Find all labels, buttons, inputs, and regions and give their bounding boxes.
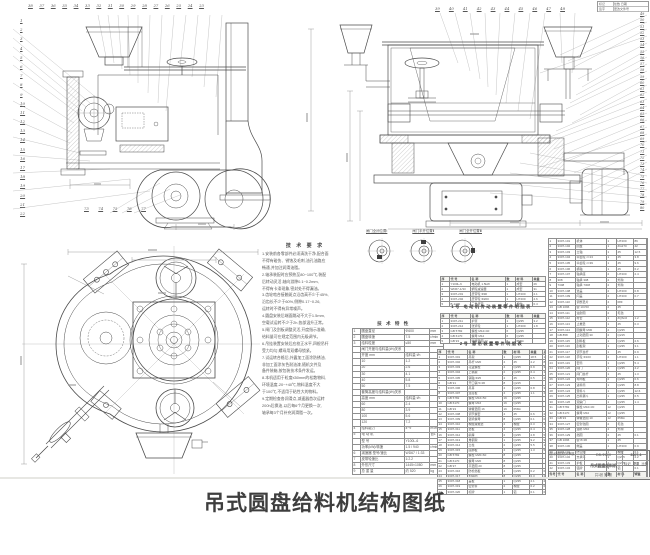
title-block-mark: 标记 — [623, 461, 632, 469]
note-line: 5.闸门及刮板调整灵活,开度指示准确, — [262, 327, 348, 334]
drawing-number: 3307-1 — [623, 451, 649, 461]
note-line: 环境温度-20~+40℃,物料温度不大 — [262, 382, 348, 389]
note-line: 6.吊挂装置安装后应校正水平,四根吊杆 — [262, 341, 348, 348]
note-line: 给料量可在规定范围内无级调节。 — [262, 334, 348, 341]
bom-table-suspension: 序代 号名 称数材 料单重总重13307-301吊架1Q23518.518.52… — [437, 349, 546, 495]
detail-view-label: 闸门半开位置Ⅱ — [412, 228, 434, 233]
table-cell: 9 — [353, 469, 361, 475]
detail-view-c-drawing — [448, 237, 478, 265]
engineering-drawing-page: 标记处数 日期 签字更改文件号 123456789101112131415161… — [0, 0, 650, 555]
right-section-view-drawing — [330, 3, 648, 233]
drawing-scale: 1:5 — [623, 469, 649, 477]
detail-view-labels: 闸门全闭位置Ⅰ闸门半开位置Ⅱ闸门全开位置Ⅲ — [366, 228, 482, 233]
bom-table-motor-drive: 序代 号名 称数材 料单重备注1Y100L-6电动机 1.5kW1成套26外购2… — [440, 276, 546, 307]
handwheel-bottom — [156, 389, 194, 427]
note-line: 于100℃,不适用于粘性大的物料。 — [262, 389, 348, 396]
sheet-edge-divider — [0, 477, 650, 479]
left-elevation-view-drawing — [10, 3, 320, 231]
title-block-marks: 标记重量比例 — [623, 461, 649, 469]
title-block-mark: 重量 — [632, 461, 641, 469]
spec-table: 1圆盘直径Φ600mm2圆盘转速7.5r/min3给料粒度≤50mm闸门开度与给… — [352, 328, 444, 475]
product-name: 吊式圆盘给料机 — [585, 461, 622, 471]
note-line: 3.齿轮啮合接触斑点沿齿高不少于45%, — [262, 292, 348, 299]
detail-view-label: 闸门全闭位置Ⅰ — [366, 228, 387, 233]
note-line: 7.试运转合格后,外露加工面涂防锈油, — [262, 355, 348, 362]
detail-view-b-drawing — [407, 237, 437, 265]
note-line: 8.本机适用于粒度≤50mm的松散物料, — [262, 375, 348, 382]
note-line: 200h后换油,以后每6个月更换一次, — [262, 403, 348, 410]
note-line: 备件装箱,按包装技术条件发运。 — [262, 368, 348, 375]
plan-view-drawing — [8, 236, 266, 476]
title-block-roles: 设计制图校对审核 — [549, 451, 585, 479]
page-title: 吊式圆盘给料机结构图纸 — [0, 487, 650, 517]
model-number: DB-Φ600 — [585, 451, 622, 461]
note-line: 2.轴承装配时应预热至80~100℃,装配 — [262, 272, 348, 279]
bom-heading-2: 2号 悬吊装置零件明细表 — [437, 341, 546, 347]
note-line: 不得有卡滞现象,密封处不得漏油。 — [262, 286, 348, 293]
technical-notes-lines: 1.安装前各零部件必须清洗干净,配合面 不得有碰伤、锈蚀及毛刺,油孔油路应 畅通… — [262, 251, 348, 417]
note-line: 4.圆盘安装后端面跳动不大于1.5mm, — [262, 313, 348, 320]
detail-view-label: 闸门全开位置Ⅲ — [459, 228, 482, 233]
title-block-number: 3307-1 标记重量比例 1:5 — [623, 451, 649, 479]
technical-notes-title: 技 术 要 求 — [262, 242, 348, 249]
title-block: 设计制图校对审核 DB-Φ600 吊式圆盘给料机 共1张 第1张 3307-1 … — [548, 450, 650, 480]
bom-table-guard: 序代 号名 称数材 料单重备注13307-211护罩1Q2353.223307-… — [440, 313, 546, 344]
table-cell: 约 520 — [405, 469, 430, 475]
note-line: 沿齿长不少于60%,侧隙0.17~0.26, — [262, 299, 348, 306]
title-block-role: 审核 — [568, 452, 574, 456]
note-line: 空载试运转不少于2h,各部温升正常。 — [262, 320, 348, 327]
detail-view-a-drawing — [365, 237, 395, 265]
note-line: 后转动灵活,轴向游隙0.1~0.2mm, — [262, 279, 348, 286]
note-line: 轴承每3个月补充润滑脂一次。 — [262, 410, 348, 417]
note-line: 非加工面涂灰色耐油漆,随机文件及 — [262, 362, 348, 369]
bom-table-main: 13307-101机体1HT200868623307-102圆盘1ZG27042… — [548, 238, 648, 478]
note-line: 受力均匀,螺母用双螺母锁紧。 — [262, 348, 348, 355]
note-line: 畅通,并加注润滑油脂。 — [262, 265, 348, 272]
bom-heading-1: 1号 电动机传动装置零件明细表 — [437, 304, 546, 310]
spec-table-title: 技 术 特 性 — [352, 321, 435, 327]
title-block-mark: 比例 — [640, 461, 649, 469]
note-line: 运转时不得有异常噪声。 — [262, 306, 348, 313]
table-cell: 总 重 量 — [361, 469, 405, 475]
title-block-product: DB-Φ600 吊式圆盘给料机 共1张 第1张 — [585, 451, 623, 479]
note-line: 1.安装前各零部件必须清洗干净,配合面 — [262, 251, 348, 258]
table-row: 9总 重 量约 520kg — [353, 469, 444, 475]
note-line: 9.定期检查各润滑点,减速器首次运转 — [262, 396, 348, 403]
technical-notes-block: 技 术 要 求 1.安装前各零部件必须清洗干净,配合面 不得有碰伤、锈蚀及毛刺,… — [262, 242, 348, 417]
note-line: 不得有碰伤、锈蚀及毛刺,油孔油路应 — [262, 258, 348, 265]
